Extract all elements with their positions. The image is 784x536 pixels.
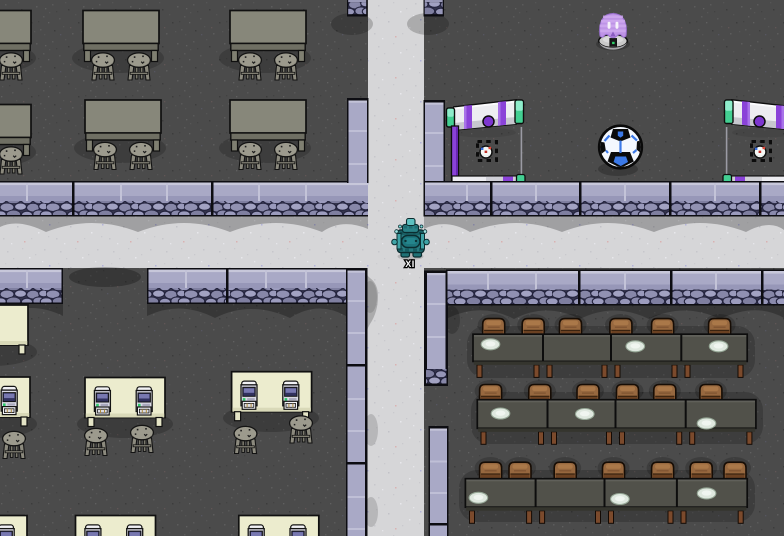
svg-text:XI: XI <box>405 259 415 269</box>
